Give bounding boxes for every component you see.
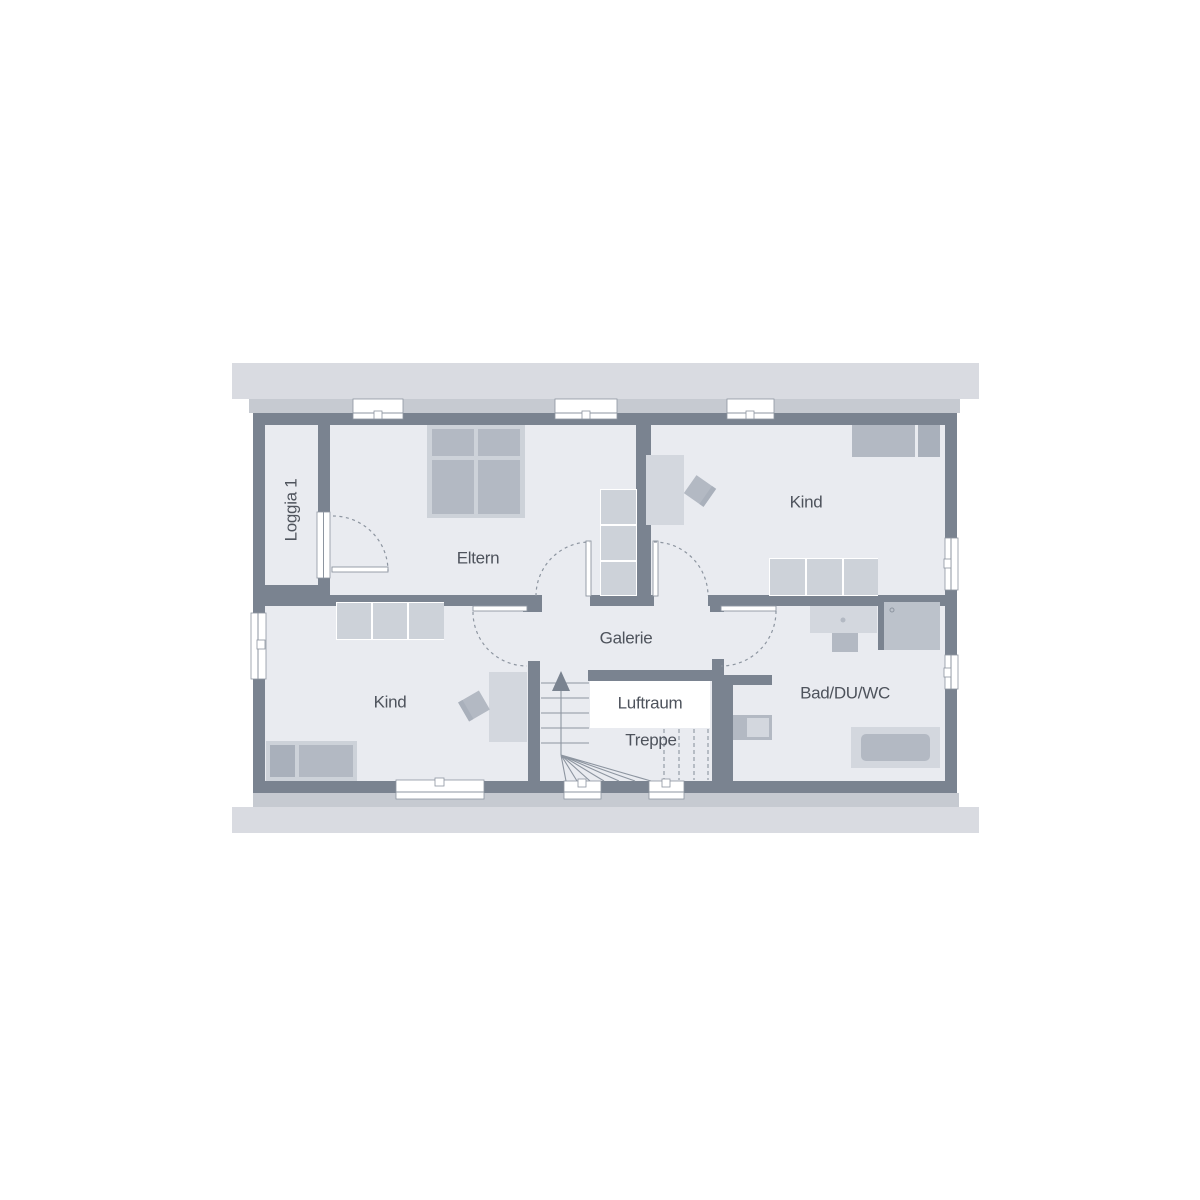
window-bad-right xyxy=(944,655,958,689)
window-stairs-bottom-1 xyxy=(564,779,601,799)
room-label-loggia1: Loggia 1 xyxy=(282,479,301,542)
wc-toilet xyxy=(733,715,772,740)
roof-window-center xyxy=(555,399,617,419)
floor-plan-page: Loggia 1 Eltern Kind Galerie Kind Luftra… xyxy=(0,0,1200,1200)
room-label-kind-unten: Kind xyxy=(374,693,407,712)
room-label-treppe: Treppe xyxy=(625,731,676,750)
wall-bad-nook xyxy=(722,675,772,685)
wardrobe-kind-oben xyxy=(769,558,878,596)
wall-center-mid xyxy=(590,595,654,606)
bed-kind-unten xyxy=(266,741,357,781)
sink-pedestal xyxy=(832,633,858,652)
window-kind-unten-left xyxy=(251,613,266,679)
floor-plan-drawing: Loggia 1 Eltern Kind Galerie Kind Luftra… xyxy=(0,0,1200,1200)
room-label-kind-oben: Kind xyxy=(790,493,823,512)
roof-window-eltern xyxy=(353,399,403,419)
room-label-bad: Bad/DU/WC xyxy=(800,684,890,703)
wall-stair-left xyxy=(528,661,540,781)
wall-loggia-right-upper xyxy=(318,425,330,513)
outer-wall-bottom xyxy=(253,781,957,793)
window-kind-unten-bottom xyxy=(396,778,484,799)
eaves-strip-bottom xyxy=(253,793,959,807)
bed-kind-oben xyxy=(852,425,940,457)
bathtub xyxy=(851,727,940,768)
wardrobe-eltern xyxy=(600,489,637,596)
wall-shower xyxy=(878,597,884,650)
window-kind-oben-right xyxy=(944,538,958,590)
faucet-dot xyxy=(841,618,846,623)
wall-bad-left xyxy=(722,685,733,781)
desk-kind-unten xyxy=(489,672,527,742)
roof-window-kind-oben xyxy=(727,399,774,419)
desk-kind-oben xyxy=(646,455,684,525)
room-label-galerie: Galerie xyxy=(600,629,653,648)
wall-luftraum-top xyxy=(588,670,712,681)
shower-tray xyxy=(884,602,940,650)
window-stairs-bottom-2 xyxy=(649,779,684,799)
outer-wall-right xyxy=(945,413,957,793)
roof-band-bottom xyxy=(232,807,979,833)
room-label-luftraum: Luftraum xyxy=(618,694,683,713)
roof-band-top xyxy=(232,363,979,399)
room-label-eltern: Eltern xyxy=(457,549,500,568)
double-bed xyxy=(427,425,525,518)
wardrobe-kind-unten xyxy=(336,602,444,640)
